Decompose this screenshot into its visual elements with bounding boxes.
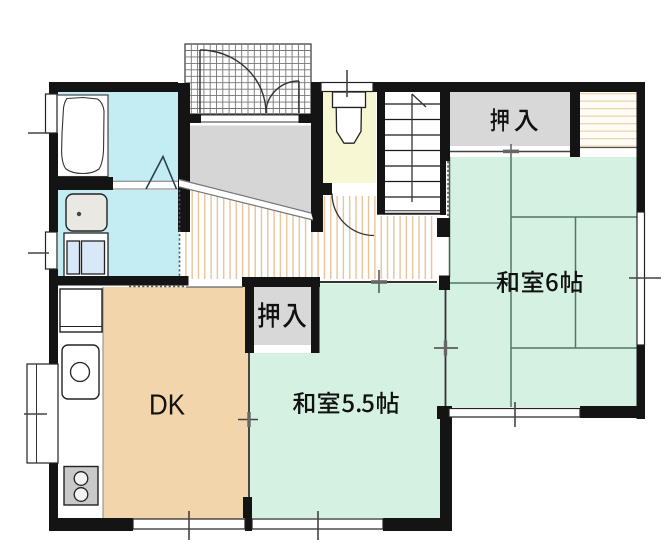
svg-text:DK: DK [149,390,185,422]
